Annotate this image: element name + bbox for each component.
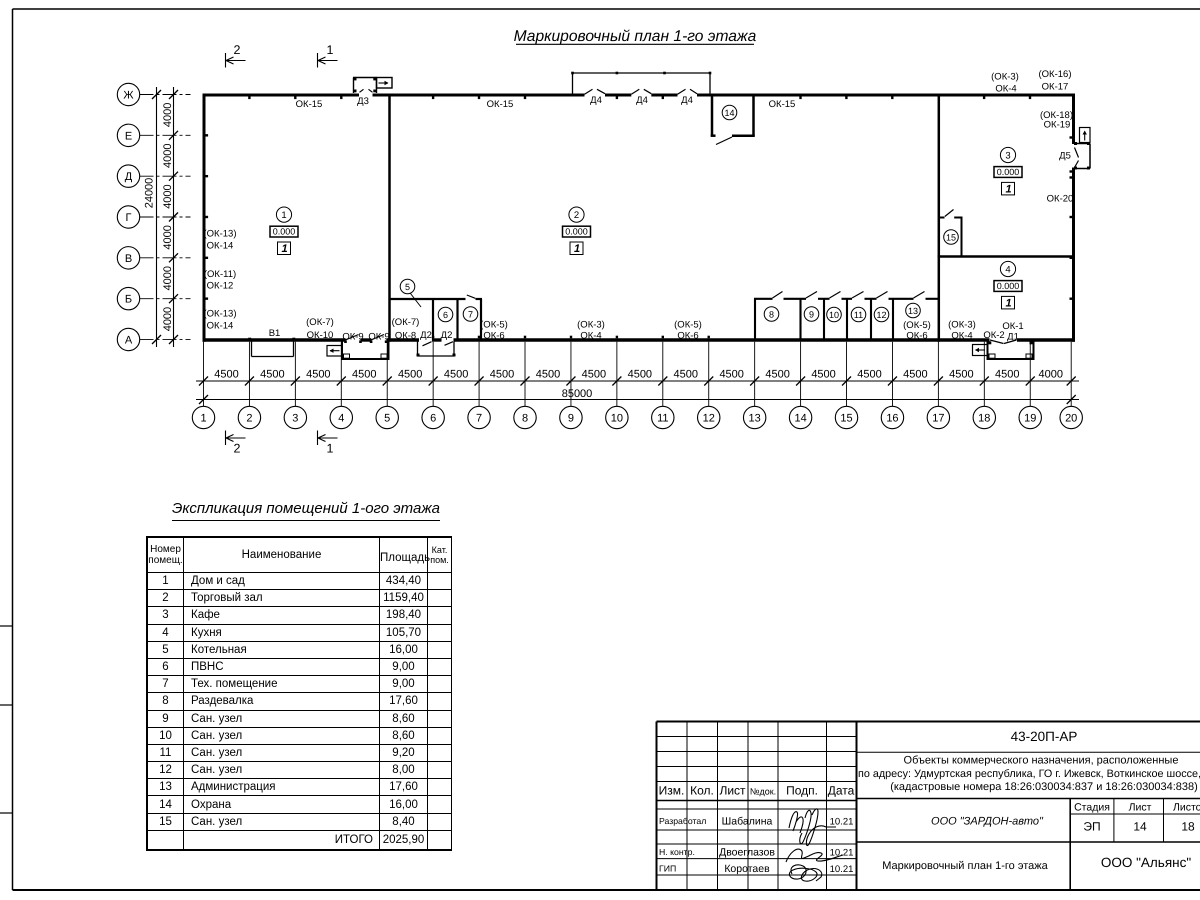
svg-text:(кадастровые номера 18:26:0300: (кадастровые номера 18:26:030034:837 и 1… bbox=[890, 781, 1198, 793]
svg-text:Разработал: Разработал bbox=[659, 816, 706, 826]
svg-text:Листов: Листов bbox=[1173, 802, 1200, 814]
svg-text:Коротаев: Коротаев bbox=[724, 863, 770, 875]
svg-text:Маркировочный план 1-го этажа: Маркировочный план 1-го этажа bbox=[882, 860, 1048, 872]
svg-text:Шабалина: Шабалина bbox=[722, 816, 773, 828]
svg-text:Лист: Лист bbox=[719, 784, 746, 798]
svg-text:Объекты коммерческого назначен: Объекты коммерческого назначения, распол… bbox=[904, 755, 1179, 767]
svg-text:Подп.: Подп. bbox=[786, 784, 818, 798]
svg-text:10.21: 10.21 bbox=[830, 817, 854, 828]
svg-text:ООО "ЗАРДОН-авто": ООО "ЗАРДОН-авто" bbox=[931, 816, 1044, 828]
svg-text:Двоеглазов: Двоеглазов bbox=[719, 847, 775, 859]
svg-text:18: 18 bbox=[1181, 820, 1195, 834]
svg-text:Лист: Лист bbox=[1129, 802, 1152, 814]
svg-text:10.21: 10.21 bbox=[830, 864, 854, 875]
svg-text:ЭП: ЭП bbox=[1083, 820, 1100, 834]
svg-text:ГИП: ГИП bbox=[659, 864, 676, 874]
svg-text:Стадия: Стадия bbox=[1074, 802, 1110, 814]
svg-text:по адресу: Удмуртская республи: по адресу: Удмуртская республика, ГО г. … bbox=[858, 768, 1200, 780]
svg-text:43-20П-АР: 43-20П-АР bbox=[1011, 729, 1078, 744]
svg-text:Н. контр.: Н. контр. bbox=[659, 847, 695, 857]
svg-text:Изм.: Изм. bbox=[659, 784, 685, 798]
svg-text:ООО "Альянс": ООО "Альянс" bbox=[1101, 855, 1191, 870]
svg-text:10.21: 10.21 bbox=[830, 848, 854, 859]
svg-text:Дата: Дата bbox=[828, 784, 855, 798]
svg-text:14: 14 bbox=[1133, 820, 1147, 834]
svg-text:№док.: №док. bbox=[750, 787, 776, 797]
svg-text:Кол.: Кол. bbox=[690, 784, 714, 798]
